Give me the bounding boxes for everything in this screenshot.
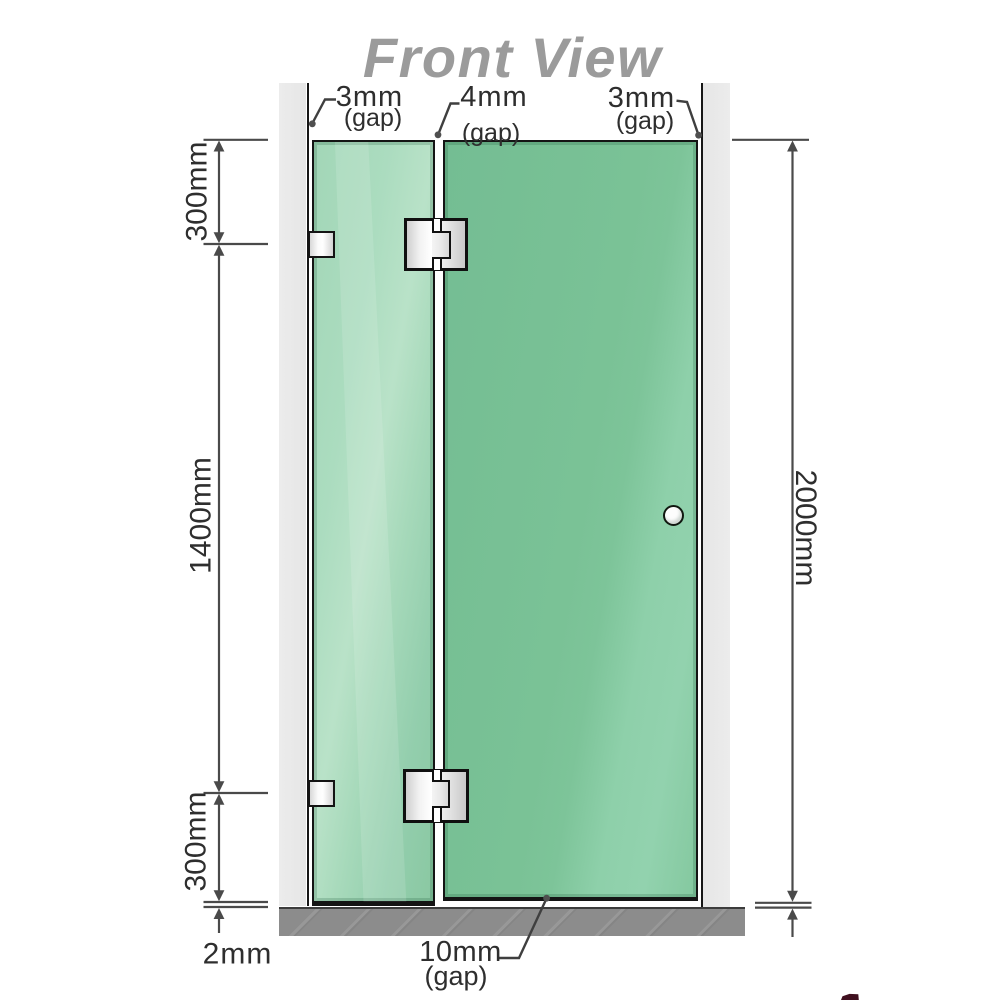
svg-text:(gap): (gap) [344,104,402,132]
svg-text:(gap): (gap) [424,961,487,991]
svg-text:300mm: 300mm [181,141,214,241]
svg-text:1400mm: 1400mm [185,457,218,574]
svg-text:2mm: 2mm [203,938,273,971]
svg-text:(gap): (gap) [462,119,520,147]
svg-text:2000mm: 2000mm [789,470,822,587]
svg-text:(gap): (gap) [616,107,674,135]
svg-text:300mm: 300mm [180,791,213,891]
svg-text:4mm: 4mm [460,81,527,113]
